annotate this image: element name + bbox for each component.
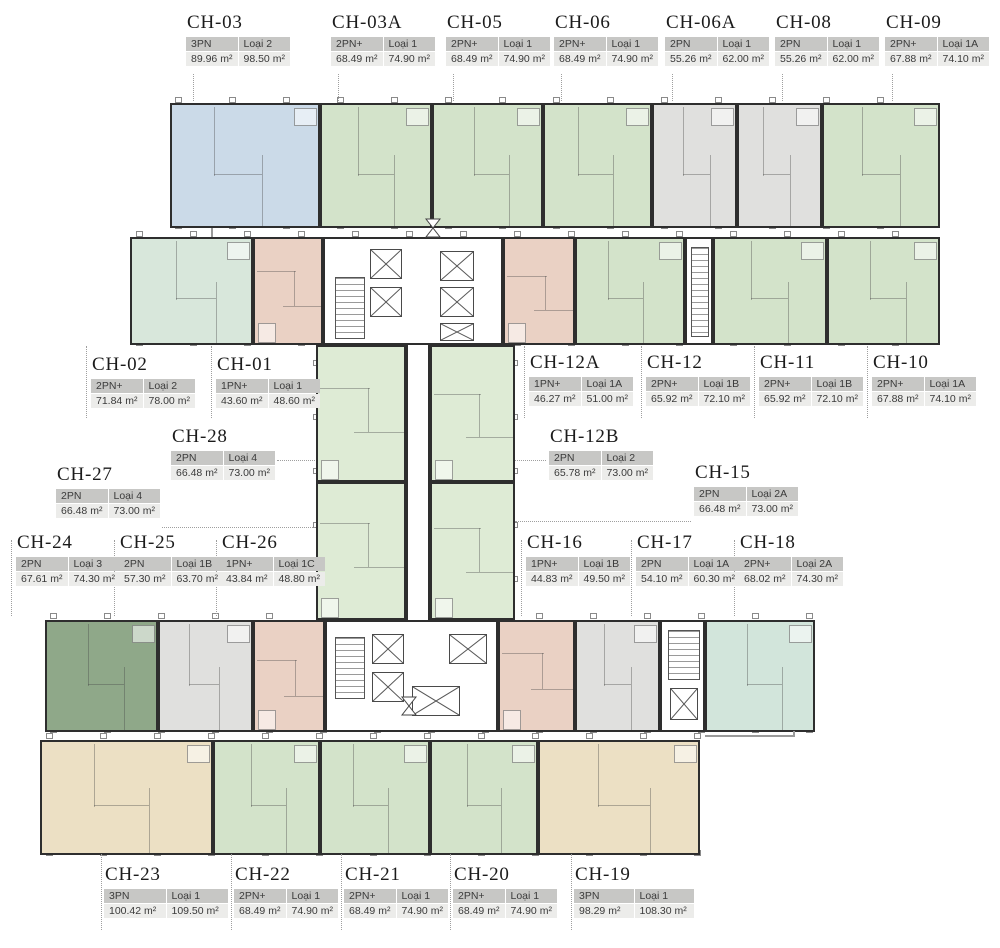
unit-title: CH-22: [235, 864, 339, 885]
unit-label-CH-02: CH-022PN+Loại 271.84 m²78.00 m²: [90, 354, 196, 409]
facade-tick: [640, 733, 647, 739]
room-partition: [88, 624, 89, 686]
bathroom-box: [517, 108, 540, 126]
room-partition: [353, 744, 354, 807]
unit-info-table: 2PN+Loại 168.49 m²74.90 m²: [445, 36, 551, 67]
unit-type: Loại 4: [224, 451, 276, 465]
unit-area-2: 74.90 m²: [506, 904, 558, 918]
unit-title: CH-06A: [666, 12, 770, 33]
room-partition: [683, 107, 684, 176]
unit-bedrooms: 3PN: [186, 37, 238, 51]
room-partition: [751, 241, 752, 300]
unit-info-table: 2PNLoại 2A66.48 m²73.00 m²: [693, 486, 799, 517]
unit-info-table: 1PN+Loại 143.60 m²48.60 m²: [215, 378, 321, 409]
facade-tick: [104, 613, 111, 619]
unit-CH-20: [430, 740, 538, 855]
facade-tick: [154, 733, 161, 739]
unit-type: Loại 1: [287, 889, 339, 903]
unit-area-2: 74.30 m²: [792, 572, 844, 586]
unit-title: CH-23: [105, 864, 229, 885]
double-door-icon: [424, 218, 442, 238]
unit-title: CH-06: [555, 12, 659, 33]
bathroom-box: [406, 108, 429, 126]
room-partition: [467, 744, 468, 807]
unit-title: CH-28: [172, 426, 276, 447]
unit-CH-12A: [503, 237, 575, 345]
room-partition: [790, 155, 791, 226]
unit-bedrooms: 2PN: [119, 557, 171, 571]
unit-area-2: 73.00 m²: [224, 466, 276, 480]
unit-label-CH-26: CH-261PN+Loại 1C43.84 m²48.80 m²: [220, 532, 326, 587]
unit-type: Loại 1A: [925, 377, 977, 391]
wing-connector: [793, 731, 795, 737]
elevator-icon: [440, 323, 474, 341]
unit-info-table: 2PNLoại 1A54.10 m²60.30 m²: [635, 556, 741, 587]
unit-bedrooms: 2PN+: [234, 889, 286, 903]
unit-label-CH-09: CH-092PN+Loại 1A67.88 m²74.10 m²: [884, 12, 990, 67]
unit-area-1: 67.88 m²: [872, 392, 924, 406]
bathroom-box: [626, 108, 649, 126]
unit-area-1: 68.49 m²: [453, 904, 505, 918]
elevator-icon: [370, 287, 402, 317]
label-connector: [641, 346, 642, 418]
unit-area-1: 89.96 m²: [186, 52, 238, 66]
unit-area-1: 67.88 m²: [885, 52, 937, 66]
room-partition: [176, 298, 215, 299]
unit-CH-12B: [430, 345, 515, 482]
unit-info-table: 2PNLoại 367.61 m²74.30 m²: [15, 556, 121, 587]
room-partition: [284, 696, 323, 697]
unit-title: CH-08: [776, 12, 880, 33]
unit-info-table: 2PNLoại 1B57.30 m²63.70 m²: [118, 556, 224, 587]
unit-type: Loại 2: [239, 37, 291, 51]
unit-area-1: 43.84 m²: [221, 572, 273, 586]
unit-area-2: 74.10 m²: [938, 52, 990, 66]
service-core: [323, 237, 503, 345]
unit-label-CH-24: CH-242PNLoại 367.61 m²74.30 m²: [15, 532, 121, 587]
unit-type: Loại 1C: [274, 557, 326, 571]
service-core: [660, 620, 705, 732]
label-connector: [231, 854, 232, 930]
service-core: [685, 237, 713, 345]
unit-label-CH-17: CH-172PNLoại 1A54.10 m²60.30 m²: [635, 532, 741, 587]
unit-area-1: 67.61 m²: [16, 572, 68, 586]
room-partition: [434, 394, 481, 395]
unit-type: Loại 1: [397, 889, 449, 903]
room-partition: [747, 684, 782, 685]
unit-type: Loại 2: [602, 451, 654, 465]
unit-bedrooms: 2PN+: [453, 889, 505, 903]
unit-CH-23: [40, 740, 213, 855]
room-partition: [294, 271, 295, 306]
unit-area-2: 78.00 m²: [144, 394, 196, 408]
unit-info-table: 2PN+Loại 168.49 m²74.90 m²: [452, 888, 558, 919]
label-connector: [672, 74, 673, 101]
unit-bedrooms: 2PN: [665, 37, 717, 51]
room-partition: [176, 241, 177, 300]
unit-bedrooms: 2PN+: [872, 377, 924, 391]
unit-type: Loại 2A: [792, 557, 844, 571]
unit-CH-05: [432, 103, 543, 228]
unit-area-1: 54.10 m²: [636, 572, 688, 586]
unit-area-2: 109.50 m²: [167, 904, 229, 918]
room-partition: [479, 394, 480, 438]
bathroom-box: [435, 460, 453, 480]
room-partition: [608, 241, 609, 300]
unit-area-1: 98.29 m²: [574, 904, 634, 918]
bathroom-box: [132, 625, 155, 643]
bathroom-box: [659, 242, 682, 260]
bathroom-box: [258, 323, 276, 343]
unit-CH-11: [713, 237, 827, 345]
room-partition: [320, 388, 370, 389]
unit-title: CH-24: [17, 532, 121, 553]
unit-label-CH-10: CH-102PN+Loại 1A67.88 m²74.10 m²: [871, 352, 977, 407]
label-connector: [338, 74, 339, 101]
unit-title: CH-10: [873, 352, 977, 373]
unit-CH-21: [320, 740, 430, 855]
unit-type: Loại 1: [269, 379, 321, 393]
room-partition: [219, 667, 220, 730]
unit-CH-19: [538, 740, 700, 855]
room-partition: [149, 788, 150, 853]
unit-bedrooms: 2PN: [636, 557, 688, 571]
unit-bedrooms: 2PN+: [91, 379, 143, 393]
unit-label-CH-20: CH-202PN+Loại 168.49 m²74.90 m²: [452, 864, 558, 919]
facade-tick: [46, 733, 53, 739]
facade-tick: [478, 733, 485, 739]
unit-title: CH-11: [760, 352, 864, 373]
unit-area-1: 68.49 m²: [331, 52, 383, 66]
unit-label-CH-27: CH-272PNLoại 466.48 m²73.00 m²: [55, 464, 161, 519]
unit-type: Loại 1: [718, 37, 770, 51]
unit-info-table: 2PN+Loại 168.49 m²74.90 m²: [343, 888, 449, 919]
elevator-icon: [449, 634, 487, 664]
unit-label-CH-03: CH-033PNLoại 289.96 m²98.50 m²: [185, 12, 291, 67]
room-partition: [358, 174, 394, 175]
bathroom-box: [227, 242, 250, 260]
unit-area-2: 72.10 m²: [812, 392, 864, 406]
bathroom-box: [294, 108, 317, 126]
bathroom-box: [503, 710, 521, 730]
label-connector: [453, 74, 454, 101]
label-connector: [631, 540, 632, 616]
unit-type: Loại 1A: [938, 37, 990, 51]
unit-area-2: 62.00 m²: [828, 52, 880, 66]
room-partition: [613, 155, 614, 226]
unit-area-2: 51.00 m²: [582, 392, 634, 406]
unit-title: CH-09: [886, 12, 990, 33]
facade-tick: [208, 733, 215, 739]
unit-bedrooms: 1PN+: [529, 377, 581, 391]
unit-area-1: 57.30 m²: [119, 572, 171, 586]
room-partition: [88, 684, 124, 685]
bathroom-box: [634, 625, 657, 643]
unit-bedrooms: 3PN: [574, 889, 634, 903]
elevator-icon: [440, 251, 474, 281]
room-partition: [434, 528, 481, 529]
room-partition: [604, 624, 605, 686]
label-connector: [521, 540, 522, 616]
unit-bedrooms: 2PN+: [554, 37, 606, 51]
label-connector: [571, 854, 572, 930]
facade-tick: [316, 733, 323, 739]
room-partition: [94, 744, 95, 807]
elevator-icon: [370, 249, 402, 279]
unit-area-1: 55.26 m²: [665, 52, 717, 66]
unit-bedrooms: 2PN: [171, 451, 223, 465]
room-partition: [295, 660, 296, 696]
room-partition: [124, 667, 125, 730]
unit-area-2: 108.30 m²: [635, 904, 695, 918]
room-partition: [531, 689, 573, 690]
unit-type: Loại 2A: [747, 487, 799, 501]
unit-area-1: 65.92 m²: [759, 392, 811, 406]
unit-CH-06A: [652, 103, 737, 228]
unit-info-table: 2PN+Loại 1B65.92 m²72.10 m²: [645, 376, 751, 407]
bathroom-box: [512, 745, 535, 763]
facade-tick: [586, 733, 593, 739]
label-connector: [450, 854, 451, 930]
unit-label-CH-12B: CH-12B2PNLoại 265.78 m²73.00 m²: [548, 426, 654, 481]
unit-info-table: 1PN+Loại 1A46.27 m²51.00 m²: [528, 376, 634, 407]
unit-area-2: 74.90 m²: [384, 52, 436, 66]
room-partition: [747, 624, 748, 686]
unit-label-CH-11: CH-112PN+Loại 1B65.92 m²72.10 m²: [758, 352, 864, 407]
unit-bedrooms: 1PN+: [216, 379, 268, 393]
unit-title: CH-21: [345, 864, 449, 885]
room-partition: [474, 174, 510, 175]
unit-type: Loại 2: [144, 379, 196, 393]
unit-area-2: 74.10 m²: [925, 392, 977, 406]
unit-area-1: 66.48 m²: [56, 504, 108, 518]
label-connector: [277, 460, 315, 461]
room-partition: [251, 744, 252, 807]
label-connector: [782, 74, 783, 101]
unit-type: Loại 1A: [689, 557, 741, 571]
wing-connector: [705, 735, 795, 737]
unit-area-2: 74.90 m²: [499, 52, 551, 66]
facade-tick: [806, 613, 813, 619]
unit-area-1: 71.84 m²: [91, 394, 143, 408]
room-partition: [542, 653, 543, 689]
unit-title: CH-26: [222, 532, 326, 553]
room-partition: [862, 107, 863, 176]
unit-title: CH-25: [120, 532, 224, 553]
room-partition: [643, 282, 644, 343]
bathroom-box: [711, 108, 734, 126]
bathroom-box: [321, 598, 339, 618]
unit-title: CH-01: [217, 354, 321, 375]
unit-type: Loại 1: [828, 37, 880, 51]
unit-area-2: 74.30 m²: [69, 572, 121, 586]
facade-tick: [100, 733, 107, 739]
room-partition: [900, 155, 901, 226]
stairs-icon: [335, 637, 365, 699]
unit-area-1: 66.48 m²: [694, 502, 746, 516]
unit-CH-22: [213, 740, 320, 855]
facade-tick: [266, 613, 273, 619]
unit-CH-03: [170, 103, 320, 228]
unit-area-2: 73.00 m²: [747, 502, 799, 516]
room-partition: [394, 155, 395, 226]
room-partition: [358, 107, 359, 176]
unit-type: Loại 1: [635, 889, 695, 903]
unit-CH-17: [575, 620, 660, 732]
room-partition: [631, 667, 632, 730]
unit-area-1: 65.92 m²: [646, 392, 698, 406]
room-partition: [650, 788, 651, 853]
unit-area-2: 48.60 m²: [269, 394, 321, 408]
bathroom-box: [789, 625, 812, 643]
unit-info-table: 2PNLoại 265.78 m²73.00 m²: [548, 450, 654, 481]
unit-title: CH-15: [695, 462, 799, 483]
room-partition: [608, 298, 643, 299]
unit-info-table: 2PN+Loại 168.49 m²74.90 m²: [330, 36, 436, 67]
unit-area-2: 98.50 m²: [239, 52, 291, 66]
unit-info-table: 2PN+Loại 1B65.92 m²72.10 m²: [758, 376, 864, 407]
label-connector: [341, 854, 342, 930]
unit-CH-24: [45, 620, 158, 732]
unit-bedrooms: 2PN+: [646, 377, 698, 391]
stairs-icon: [691, 247, 709, 337]
unit-CH-16: [498, 620, 575, 732]
label-connector: [211, 346, 212, 418]
unit-CH-28: [316, 345, 406, 482]
unit-area-2: 74.90 m²: [287, 904, 339, 918]
label-connector: [162, 527, 315, 528]
unit-area-1: 46.27 m²: [529, 392, 581, 406]
bathroom-box: [187, 745, 210, 763]
unit-area-1: 68.49 m²: [344, 904, 396, 918]
unit-label-CH-22: CH-222PN+Loại 168.49 m²74.90 m²: [233, 864, 339, 919]
facade-tick: [50, 613, 57, 619]
unit-type: Loại 1B: [172, 557, 224, 571]
unit-bedrooms: 2PN: [16, 557, 68, 571]
unit-label-CH-23: CH-233PNLoại 1100.42 m²109.50 m²: [103, 864, 229, 919]
unit-info-table: 3PNLoại 198.29 m²108.30 m²: [573, 888, 695, 919]
unit-label-CH-18: CH-182PN+Loại 2A68.02 m²74.30 m²: [738, 532, 844, 587]
unit-area-2: 73.00 m²: [109, 504, 161, 518]
unit-title: CH-20: [454, 864, 558, 885]
room-partition: [782, 667, 783, 730]
room-partition: [578, 174, 613, 175]
elevator-icon: [412, 686, 460, 716]
unit-title: CH-17: [637, 532, 741, 553]
unit-bedrooms: 2PN+: [885, 37, 937, 51]
unit-type: Loại 1B: [579, 557, 631, 571]
unit-type: Loại 1: [607, 37, 659, 51]
unit-type: Loại 1B: [812, 377, 864, 391]
unit-label-CH-12: CH-122PN+Loại 1B65.92 m²72.10 m²: [645, 352, 751, 407]
facade-tick: [752, 613, 759, 619]
unit-CH-06: [543, 103, 652, 228]
unit-type: Loại 1B: [699, 377, 751, 391]
label-connector: [892, 74, 893, 101]
unit-area-2: 60.30 m²: [689, 572, 741, 586]
unit-bedrooms: 2PN+: [331, 37, 383, 51]
unit-title: CH-03: [187, 12, 291, 33]
label-connector: [515, 521, 691, 522]
room-partition: [751, 298, 787, 299]
room-partition: [368, 523, 369, 567]
label-connector: [11, 540, 12, 616]
room-partition: [534, 310, 573, 311]
elevator-icon: [372, 634, 404, 664]
unit-bedrooms: 2PN+: [739, 557, 791, 571]
unit-bedrooms: 2PN+: [344, 889, 396, 903]
unit-label-CH-19: CH-193PNLoại 198.29 m²108.30 m²: [573, 864, 695, 919]
facade-tick: [694, 733, 701, 739]
unit-CH-01: [253, 237, 323, 345]
bathroom-box: [508, 323, 526, 343]
room-partition: [262, 155, 263, 226]
unit-area-1: 68.49 m²: [234, 904, 286, 918]
elevator-icon: [440, 287, 474, 317]
room-partition: [251, 805, 285, 806]
unit-type: Loại 1: [384, 37, 436, 51]
room-partition: [545, 276, 546, 311]
label-connector: [86, 346, 87, 418]
unit-CH-08: [737, 103, 822, 228]
unit-info-table: 2PNLoại 466.48 m²73.00 m²: [55, 488, 161, 519]
unit-label-CH-25: CH-252PNLoại 1B57.30 m²63.70 m²: [118, 532, 224, 587]
room-partition: [862, 174, 900, 175]
room-partition: [189, 624, 190, 686]
bathroom-box: [227, 625, 250, 643]
unit-area-1: 65.78 m²: [549, 466, 601, 480]
room-partition: [320, 523, 370, 524]
unit-area-2: 72.10 m²: [699, 392, 751, 406]
unit-label-CH-05: CH-052PN+Loại 168.49 m²74.90 m²: [445, 12, 551, 67]
unit-area-2: 74.90 m²: [397, 904, 449, 918]
room-partition: [870, 241, 871, 300]
unit-type: Loại 1: [167, 889, 229, 903]
unit-bedrooms: 1PN+: [526, 557, 578, 571]
unit-bedrooms: 1PN+: [221, 557, 273, 571]
double-door-icon: [400, 696, 418, 716]
room-partition: [479, 528, 480, 572]
bathroom-box: [801, 242, 824, 260]
facade-tick: [370, 733, 377, 739]
unit-area-1: 43.60 m²: [216, 394, 268, 408]
room-partition: [388, 788, 389, 853]
room-partition: [501, 788, 502, 853]
unit-area-2: 48.80 m²: [274, 572, 326, 586]
room-partition: [474, 107, 475, 176]
unit-bedrooms: 2PN: [694, 487, 746, 501]
unit-label-CH-01: CH-011PN+Loại 143.60 m²48.60 m²: [215, 354, 321, 409]
central-corridor: [406, 345, 430, 620]
room-partition: [604, 684, 631, 685]
room-partition: [906, 282, 907, 343]
unit-area-2: 49.50 m²: [579, 572, 631, 586]
unit-bedrooms: 2PN: [549, 451, 601, 465]
unit-label-CH-12A: CH-12A1PN+Loại 1A46.27 m²51.00 m²: [528, 352, 634, 407]
unit-info-table: 2PN+Loại 2A68.02 m²74.30 m²: [738, 556, 844, 587]
stairs-icon: [335, 277, 365, 339]
facade-tick: [532, 733, 539, 739]
unit-area-2: 74.90 m²: [607, 52, 659, 66]
unit-CH-15: [430, 482, 515, 620]
bathroom-box: [674, 745, 697, 763]
facade-tick: [644, 613, 651, 619]
facade-tick: [536, 613, 543, 619]
unit-type: Loại 4: [109, 489, 161, 503]
bathroom-box: [294, 745, 317, 763]
unit-title: CH-19: [575, 864, 695, 885]
unit-title: CH-18: [740, 532, 844, 553]
